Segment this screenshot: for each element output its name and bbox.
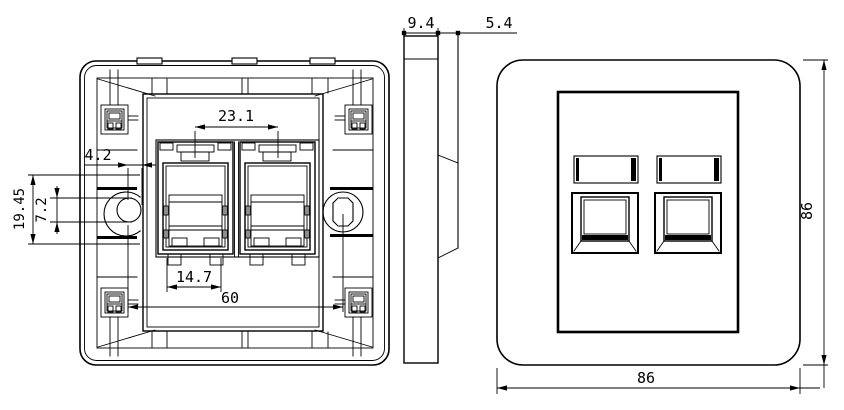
back-view: 23.1 4.2 19.45 7.2 (12, 58, 389, 365)
keystone-module-right (240, 142, 315, 265)
corner-clip-bottom-left (101, 288, 138, 356)
mounting-screw-hole-left (104, 192, 148, 236)
dim-latch-spacing: 23.1 (218, 107, 254, 125)
dimension-front-width: 86 (497, 368, 820, 394)
dimension-thickness-protrusion: 9.4 5.4 (402, 14, 517, 36)
dim-front-height: 86 (798, 202, 816, 220)
top-notch (137, 58, 162, 64)
dimension-port-width: 14.7 (167, 258, 221, 292)
side-view: 9.4 5.4 (402, 14, 517, 363)
faceplate-three-view-drawing: 23.1 4.2 19.45 7.2 (0, 0, 844, 410)
dim-thickness: 9.4 (407, 14, 434, 32)
keystone-module-left (158, 142, 233, 265)
dim-protrusion: 5.4 (485, 14, 512, 32)
corner-clip-top-left (101, 70, 138, 134)
dim-slot-height: 19.45 (12, 188, 28, 230)
jack-port-left (572, 193, 638, 253)
label-window-left (574, 156, 638, 183)
dimension-screw-spacing: 60 (128, 214, 343, 312)
front-module-frame (558, 92, 738, 332)
corner-clip-top-right (335, 70, 372, 134)
drawing-canvas: 23.1 4.2 19.45 7.2 (0, 0, 844, 410)
dim-hole-width: 7.2 (34, 197, 50, 222)
dim-hole-offset: 4.2 (84, 146, 111, 164)
dim-port-width: 14.7 (176, 268, 212, 286)
dim-front-width: 86 (637, 369, 655, 387)
jack-port-right (655, 193, 721, 253)
top-notch (232, 58, 257, 64)
dimension-front-height: 86 (798, 60, 828, 388)
dim-screw-spacing: 60 (221, 289, 239, 307)
front-view: 86 86 (497, 60, 828, 394)
label-window-right (657, 156, 721, 183)
dimension-latch-spacing: 23.1 (195, 107, 278, 158)
top-notch (310, 58, 335, 64)
